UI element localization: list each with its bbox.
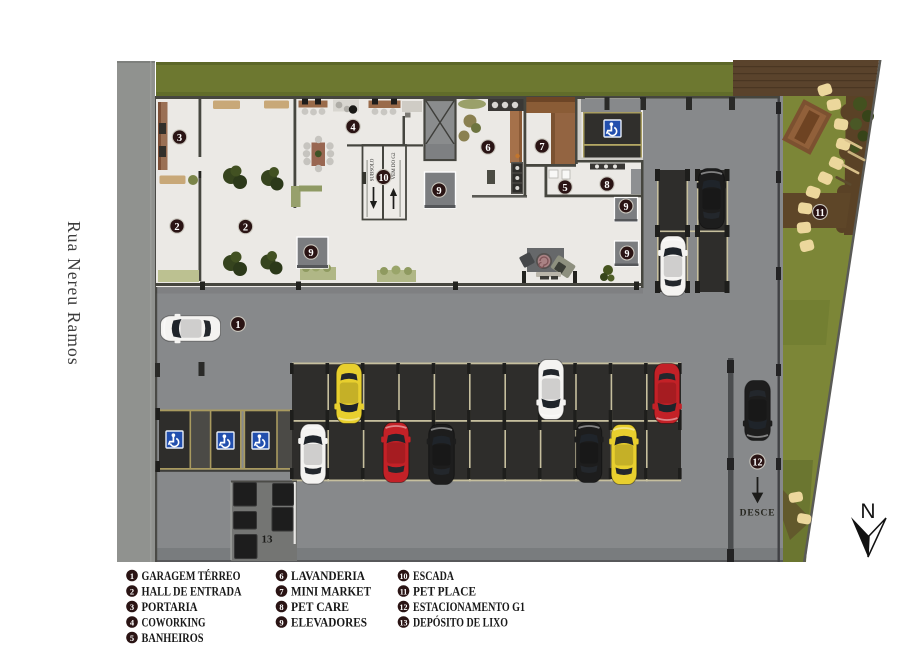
svg-text:9: 9	[308, 248, 313, 259]
svg-text:10: 10	[379, 173, 389, 184]
svg-text:9: 9	[436, 186, 441, 197]
svg-text:6: 6	[485, 143, 490, 154]
svg-text:10: 10	[400, 572, 408, 581]
svg-text:N: N	[860, 500, 875, 523]
svg-text:4: 4	[350, 123, 356, 134]
svg-text:3: 3	[177, 133, 182, 144]
svg-text:GARAGEM TÉRREO: GARAGEM TÉRREO	[142, 569, 241, 583]
svg-text:COWORKING: COWORKING	[142, 616, 206, 630]
svg-text:11: 11	[400, 588, 408, 597]
svg-text:13: 13	[262, 534, 274, 546]
svg-text:12: 12	[753, 458, 763, 469]
svg-text:5: 5	[130, 633, 134, 643]
svg-text:11: 11	[815, 208, 824, 219]
svg-text:3: 3	[130, 602, 134, 612]
svg-text:Rua Nereu Ramos: Rua Nereu Ramos	[64, 221, 84, 366]
svg-text:1: 1	[235, 320, 240, 331]
svg-text:12: 12	[400, 603, 408, 612]
svg-text:SUBSOLO: SUBSOLO	[371, 158, 376, 181]
svg-text:2: 2	[130, 587, 134, 597]
svg-text:HALL DE ENTRADA: HALL DE ENTRADA	[142, 585, 242, 599]
svg-text:2: 2	[174, 222, 179, 233]
svg-text:8: 8	[604, 180, 609, 191]
svg-text:VEM DO G2: VEM DO G2	[392, 152, 397, 179]
svg-text:LAVANDERIA: LAVANDERIA	[291, 569, 365, 583]
svg-text:ESCADA: ESCADA	[413, 569, 454, 583]
svg-text:BANHEIROS: BANHEIROS	[142, 631, 204, 645]
svg-text:PET CARE: PET CARE	[291, 600, 349, 614]
svg-text:8: 8	[279, 602, 283, 612]
svg-text:ESTACIONAMENTO G1: ESTACIONAMENTO G1	[413, 600, 525, 614]
svg-text:7: 7	[539, 142, 544, 153]
svg-text:6: 6	[279, 571, 283, 581]
svg-text:5: 5	[562, 183, 567, 194]
svg-text:9: 9	[625, 249, 630, 260]
svg-text:PET PLACE: PET PLACE	[413, 585, 476, 599]
svg-text:DESCE: DESCE	[740, 509, 776, 519]
svg-text:2: 2	[243, 223, 248, 234]
svg-text:DEPÓSITO DE LIXO: DEPÓSITO DE LIXO	[413, 616, 508, 630]
svg-text:9: 9	[279, 618, 283, 628]
svg-text:9: 9	[624, 202, 629, 213]
svg-text:PORTARIA: PORTARIA	[142, 600, 198, 614]
svg-text:MINI MARKET: MINI MARKET	[291, 585, 372, 599]
svg-text:1: 1	[130, 571, 134, 581]
svg-text:13: 13	[400, 619, 408, 628]
svg-text:ELEVADORES: ELEVADORES	[291, 616, 367, 630]
